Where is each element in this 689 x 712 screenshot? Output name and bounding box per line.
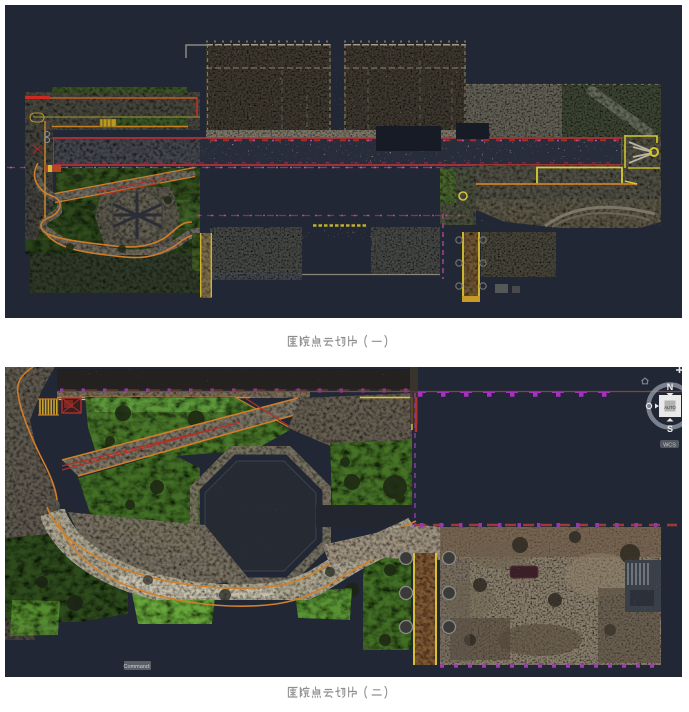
svg-text:AUTO: AUTO [664,405,676,410]
svg-text:WCS: WCS [663,443,676,449]
svg-text:N: N [667,382,674,392]
svg-text:Command:: Command: [124,664,151,670]
svg-text:S: S [667,424,673,434]
